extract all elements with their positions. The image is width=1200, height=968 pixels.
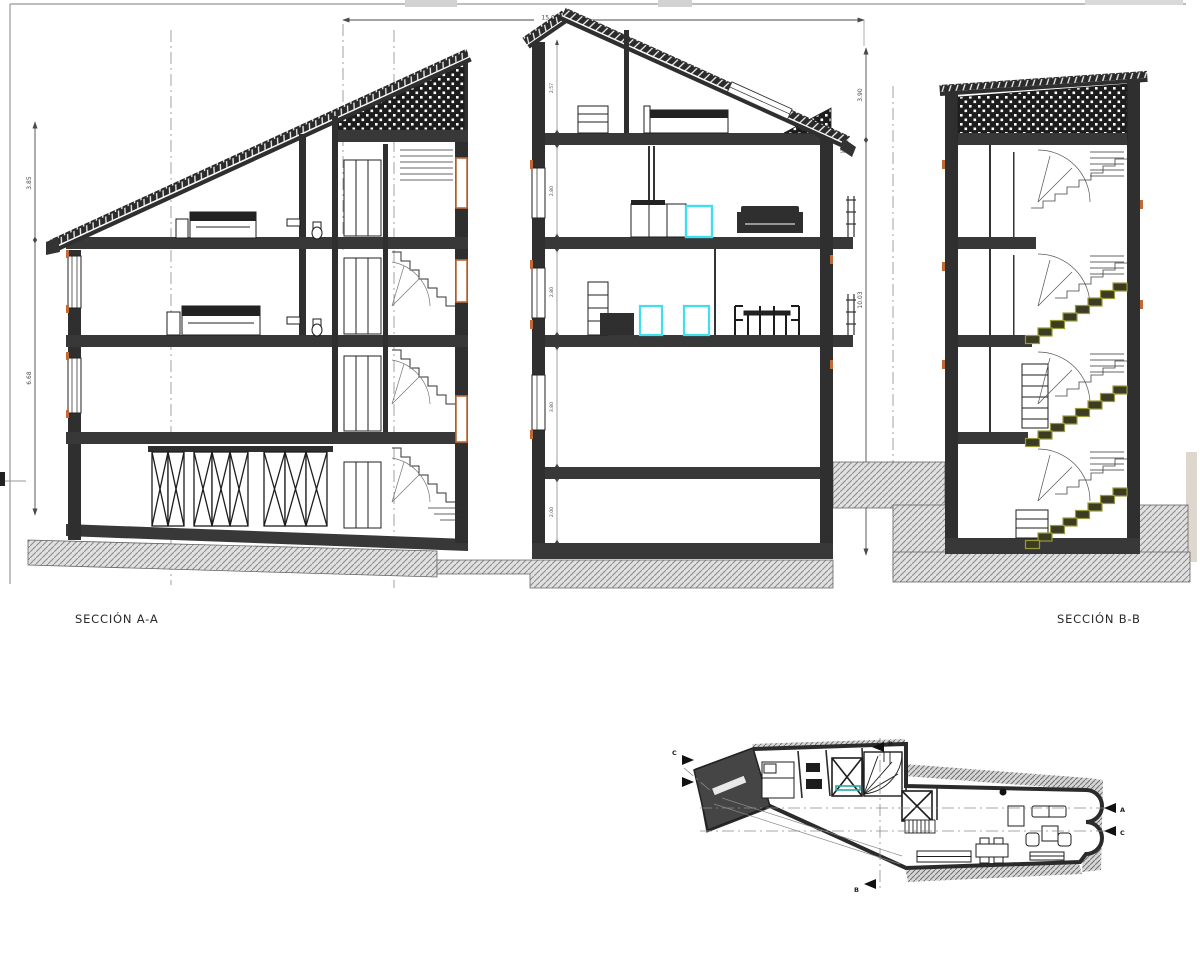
- dim-left-lower: 6.68: [26, 371, 33, 385]
- attic-slab: [958, 133, 1127, 145]
- floor-slab: [66, 335, 468, 347]
- shelf-unit: [1022, 364, 1048, 428]
- section-a-left-building: [28, 49, 472, 577]
- foundation-hatch: [437, 560, 833, 588]
- floor-plan-drawing: B B A C C: [672, 738, 1125, 894]
- base-slab: [532, 543, 833, 559]
- foundation-hatch: [893, 552, 1190, 582]
- stair-flight-outline: [1031, 159, 1127, 494]
- dim-chain: 2.80: [549, 287, 555, 297]
- section-a-title: SECCIÓN A-A: [75, 611, 159, 626]
- marker-arrow-c-left: [682, 755, 694, 765]
- top-gray-bar: [1085, 0, 1183, 5]
- dim-chain: 2.00: [549, 507, 555, 517]
- plan-dot: [1000, 789, 1007, 796]
- right-exterior-wall: [1127, 76, 1140, 554]
- marker-arrow-b-bottom: [864, 879, 876, 889]
- appliance-cyan: [640, 306, 662, 335]
- sofa: [737, 206, 803, 233]
- attic-furniture: [578, 106, 728, 133]
- section-a-middle-building: [437, 7, 945, 588]
- left-exterior-wall: [945, 86, 958, 554]
- architectural-drawing: 15.06 3.85 6.68 3.90 10.03 2.57 2.80 2.8…: [0, 0, 1200, 968]
- ground-strip-hatch: [833, 462, 945, 508]
- floor-slab: [66, 432, 468, 444]
- attic-slab: [332, 130, 468, 142]
- floor-slab: [958, 335, 1032, 347]
- top-gray-bar: [658, 0, 692, 7]
- chimney: [624, 30, 629, 133]
- window: [456, 158, 467, 442]
- right-exterior-wall: [820, 128, 833, 559]
- dim-chain: 2.57: [549, 83, 555, 93]
- attic-slab: [545, 133, 820, 145]
- plan-fixture: [806, 763, 820, 772]
- plan-fixture: [806, 779, 822, 789]
- foundation-hatch: [1138, 505, 1188, 553]
- dim-right-upper: 3.90: [857, 88, 864, 102]
- appliance-cyan: [686, 206, 712, 237]
- stair-treads-edge: [1090, 152, 1124, 470]
- marker-a: A: [1120, 806, 1125, 814]
- dim-chain: 3.80: [549, 402, 555, 412]
- marker-c-left: C: [672, 749, 677, 757]
- marker-arrow-c-left: [682, 777, 694, 787]
- plan-bed: [762, 762, 794, 798]
- shaft-wall: [383, 144, 388, 432]
- shaft-wall: [332, 116, 338, 432]
- bench: [600, 313, 634, 335]
- elevator-shaft: [902, 791, 932, 821]
- bed: [176, 212, 256, 238]
- section-b-title: SECCIÓN B-B: [1057, 611, 1141, 626]
- interior-dimension-chain: 2.57 2.80 2.80 3.80 2.00 .30 .30 .30 .30…: [549, 40, 559, 558]
- floor-slab: [958, 432, 1028, 444]
- section-b-b-drawing: [893, 71, 1190, 582]
- appliance-cyan: [684, 306, 709, 335]
- floor-slab: [545, 237, 820, 249]
- eave-gutter: [46, 237, 60, 255]
- top-gray-bar: [405, 0, 457, 7]
- x-braced-doors: [148, 446, 333, 526]
- balcony: [830, 196, 856, 369]
- floor-slab: [958, 237, 1036, 249]
- architectural-sheet: 15.06 3.85 6.68 3.90 10.03 2.57 2.80 2.8…: [0, 0, 1200, 968]
- partitions: [989, 145, 1015, 432]
- marker-b-bottom: B: [854, 886, 859, 894]
- dim-right-lower: 10.03: [857, 291, 864, 308]
- floor-slab: [545, 335, 820, 347]
- marker-arrow-a: [1104, 803, 1116, 813]
- dim-chain: 2.80: [549, 186, 555, 196]
- floor-slab: [66, 237, 468, 249]
- floor-slab: [545, 467, 820, 479]
- dim-left-upper: 3.85: [26, 176, 33, 190]
- roof-slope: [50, 49, 472, 252]
- window: [530, 160, 545, 439]
- door-frame: [714, 249, 716, 335]
- edge-mark: [0, 472, 5, 486]
- bed: [167, 306, 260, 335]
- marker-b-top: B: [888, 740, 893, 748]
- marker-c-right: C: [1120, 829, 1125, 837]
- dining-set: [735, 306, 799, 335]
- marker-arrow-c-right: [1104, 826, 1116, 836]
- kitchen-counter: [631, 200, 686, 237]
